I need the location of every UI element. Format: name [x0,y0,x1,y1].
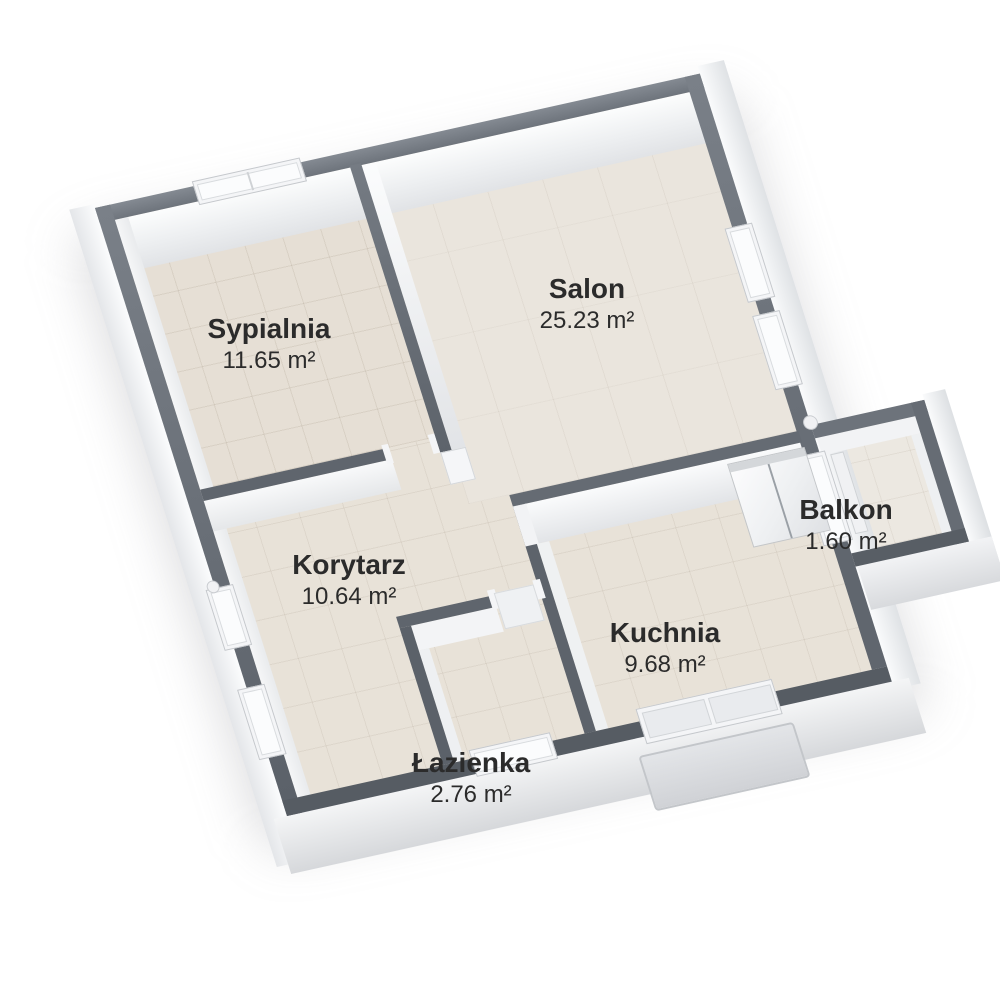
floorplan-scene: Sypialnia 11.65 m² Salon 25.23 m² Koryta… [0,0,1000,1000]
room-label-korytarz: Korytarz 10.64 m² [292,548,406,612]
room-area: 2.76 m² [412,780,530,810]
room-labels-overlay: Sypialnia 11.65 m² Salon 25.23 m² Koryta… [0,0,1000,1000]
room-name: Balkon [799,493,892,527]
room-name: Salon [540,272,635,306]
room-area: 1.60 m² [799,527,892,557]
room-label-balkon: Balkon 1.60 m² [799,493,892,557]
room-area: 9.68 m² [610,650,720,680]
room-label-salon: Salon 25.23 m² [540,272,635,336]
room-label-kuchnia: Kuchnia 9.68 m² [610,616,720,680]
room-label-lazienka: Łazienka 2.76 m² [412,746,530,810]
room-label-sypialnia: Sypialnia 11.65 m² [208,312,331,376]
room-name: Łazienka [412,746,530,780]
room-name: Kuchnia [610,616,720,650]
room-area: 10.64 m² [292,582,406,612]
room-name: Sypialnia [208,312,331,346]
room-area: 11.65 m² [208,346,331,376]
room-area: 25.23 m² [540,306,635,336]
room-name: Korytarz [292,548,406,582]
